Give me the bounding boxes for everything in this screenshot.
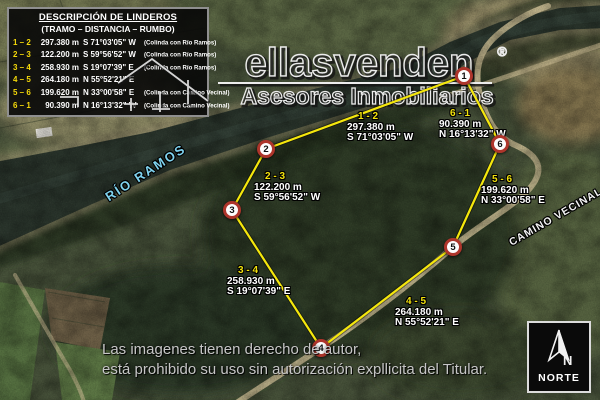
segment-id: 3 - 4 bbox=[227, 266, 290, 277]
marker-number: 5 bbox=[450, 242, 455, 253]
segment-bearing: S 71°03'05" W bbox=[347, 133, 413, 144]
boundary-marker-1: 1 bbox=[455, 67, 473, 85]
segment-label-4-5: 4 - 5 264.180 m N 55°52'21" E bbox=[395, 297, 459, 329]
boundary-marker-6: 6 bbox=[491, 135, 509, 153]
segment-id: 4 - 5 bbox=[395, 297, 459, 308]
marker-number: 2 bbox=[263, 144, 268, 155]
boundary-marker-3: 3 bbox=[223, 201, 241, 219]
segment-bearing: N 55°52'21" E bbox=[395, 318, 459, 329]
property-listing-map: DESCRIPCIÓN DE LINDEROS (TRAMO – DISTANC… bbox=[0, 0, 600, 400]
boundary-marker-2: 2 bbox=[257, 140, 275, 158]
north-indicator: N NORTE bbox=[527, 321, 591, 393]
segment-bearing: N 33°00'58" E bbox=[481, 196, 545, 207]
copyright-line-2: está prohibido su uso sin autorización e… bbox=[102, 360, 487, 380]
segment-label-1-2: 1 - 2 297.380 m S 71°03'05" W bbox=[347, 112, 413, 144]
segment-label-3-4: 3 - 4 258.930 m S 19°07'39" E bbox=[227, 266, 290, 298]
segment-label-2-3: 2 - 3 122.200 m S 59°56'52" W bbox=[254, 172, 320, 204]
segment-id: 1 - 2 bbox=[347, 112, 413, 123]
north-arrow-icon: N bbox=[537, 326, 581, 370]
segment-id: 6 - 1 bbox=[439, 109, 506, 120]
boundary-marker-5: 5 bbox=[444, 238, 462, 256]
copyright-notice: Las imagenes tienen derecho de autor, es… bbox=[102, 340, 487, 380]
copyright-line-1: Las imagenes tienen derecho de autor, bbox=[102, 340, 487, 360]
marker-number: 6 bbox=[497, 139, 502, 150]
segment-id: 5 - 6 bbox=[481, 175, 545, 186]
marker-number: 3 bbox=[229, 205, 234, 216]
north-letter: N bbox=[563, 353, 572, 368]
segment-label-5-6: 5 - 6 199.620 m N 33°00'58" E bbox=[481, 175, 545, 207]
marker-number: 1 bbox=[461, 71, 466, 82]
north-label: NORTE bbox=[538, 372, 580, 384]
segment-bearing: S 19°07'39" E bbox=[227, 287, 290, 298]
segment-id: 2 - 3 bbox=[254, 172, 320, 183]
segment-bearing: S 59°56'52" W bbox=[254, 193, 320, 204]
